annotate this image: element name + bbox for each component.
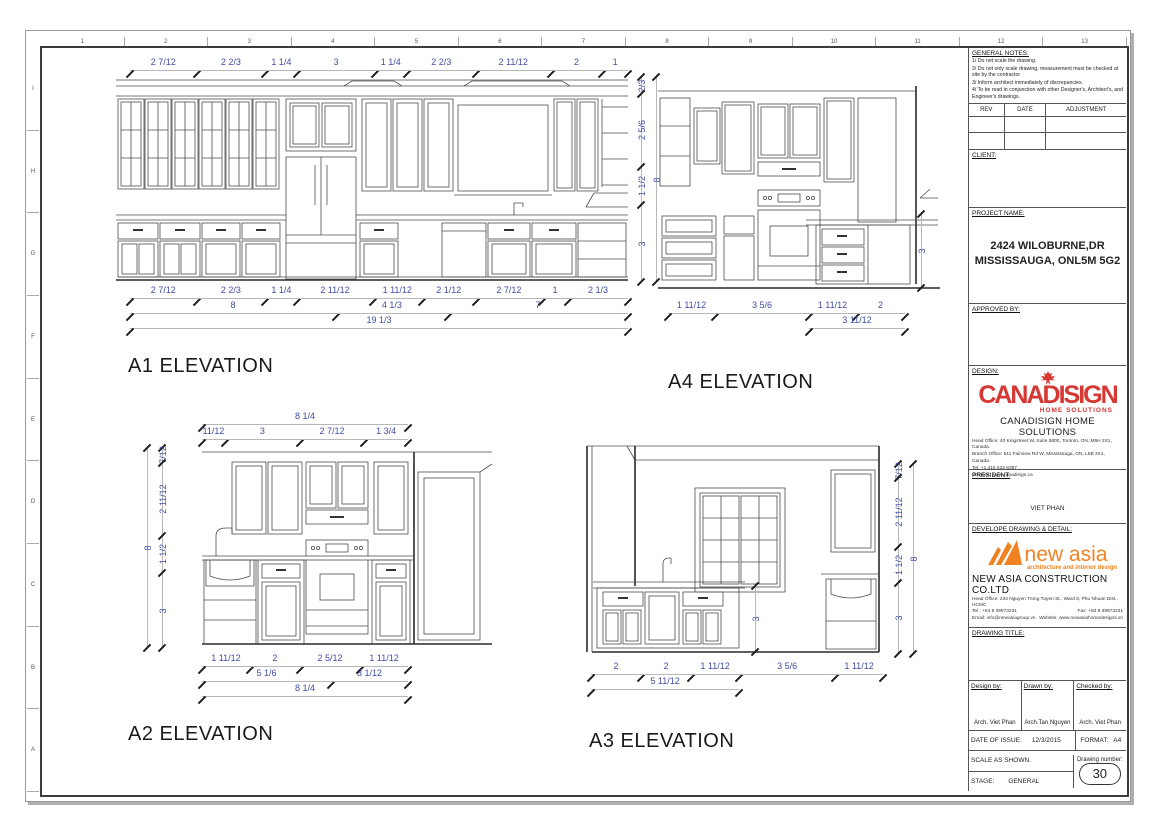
dim-label: 2 2/3 — [407, 58, 476, 71]
drawing-number-badge: 30 — [1079, 763, 1121, 785]
a2-drawing-graphic — [202, 448, 492, 648]
a1-bottom-dimensions-2: 84 1/37 — [130, 301, 628, 314]
a4-bottom-dimensions-2: 3 11/12 — [668, 316, 905, 329]
dim-label: 5 1/6 — [202, 669, 331, 682]
drawing-title-label: DRAWING TITLE: — [972, 630, 1123, 637]
dim-label: 2 — [250, 654, 300, 667]
general-note: 2/ Do not only scale drawing, measuremen… — [972, 66, 1123, 79]
revision-table: REV DATE ADJUSTMENT — [969, 104, 1126, 150]
ruler-letter: H — [27, 131, 39, 214]
dim-label: 1 11/12 — [360, 654, 408, 667]
dim-label: 1 — [542, 286, 568, 299]
dim-spacer — [668, 316, 809, 329]
canadisign-logo: CANADISIGN HOME SOLUTIONS — [972, 383, 1123, 414]
dim-label: 1 1/2 — [891, 547, 906, 583]
drawn-by-column: Drawn by: Arch.Tan Nguyen — [1022, 681, 1075, 730]
a3-bottom-dimensions-2: 5 11/12 — [591, 677, 883, 690]
new-asia-logo-subtext: architecture and interior design — [972, 565, 1117, 571]
ruler-letter: E — [27, 379, 39, 462]
a1-right-dimensions: 2/32 5/61 1/23 — [634, 77, 649, 282]
ruler-letter: G — [27, 213, 39, 296]
project-name-line2: MISSISSAUGA, ONL5M 5G2 — [972, 254, 1123, 269]
stage-label: STAGE: — [971, 778, 994, 785]
drawing-number-value: 30 — [1093, 766, 1107, 781]
dim-label: 1 1/2 — [634, 167, 649, 205]
dim-label: 8 1/4 — [202, 412, 408, 425]
dim-label: 2 7/12 — [130, 286, 197, 299]
issue-section: DATE OF ISSUE: 12/3/2015 FORMAT: A4 — [969, 731, 1126, 751]
dim-label: 1 — [602, 58, 628, 71]
approved-section: APPROVED BY: — [969, 304, 1126, 366]
dim-label: 3 5/6 — [739, 662, 835, 675]
dim-label: 2 7/12 — [300, 427, 365, 440]
dim-label: 11/12 — [202, 427, 225, 440]
ruler-number: 6 — [459, 37, 543, 46]
rev-header: REV — [969, 104, 1005, 117]
drawn-by-name: Arch.Tan Nguyen — [1024, 720, 1072, 726]
checked-by-name: Arch. Viet Phan — [1076, 720, 1124, 726]
dim-label: 3 — [225, 427, 300, 440]
dim-label: 8 — [140, 448, 155, 648]
rev-cell — [969, 117, 1005, 133]
maple-leaf-icon — [1041, 371, 1055, 385]
a3-bottom-dimensions-1: 221 11/123 5/61 11/12 — [591, 662, 883, 675]
date-of-issue-label: DATE OF ISSUE: — [971, 737, 1022, 744]
dim-label: 5 11/12 — [591, 677, 739, 690]
new-asia-address: Head Office: 234 Nguyen Trong Tuyen St.,… — [972, 597, 1123, 609]
general-note: 4/ To be read in conjunction with other … — [972, 87, 1123, 100]
adjustment-header: ADJUSTMENT — [1046, 104, 1126, 117]
a2-elevation-label: A2 ELEVATION — [128, 723, 520, 746]
dim-label: 3 — [297, 58, 374, 71]
scale-label: SCALE AS SHOWN. — [971, 757, 1031, 764]
a2-top-total-dimension: 8 1/4 — [202, 412, 408, 425]
a3-elevation: 3 7/122 11/121 1/23 8 221 11/123 5/61 11… — [583, 436, 943, 753]
general-note: 3/ Inform architect immediately of discr… — [972, 80, 1123, 87]
rev-cell — [969, 133, 1005, 149]
dim-label: 2 — [641, 662, 691, 675]
adjustment-cell — [1046, 117, 1126, 133]
ruler-letter: B — [27, 627, 39, 710]
ruler-number: 1 — [41, 37, 125, 46]
adjustment-cell — [1046, 133, 1126, 149]
dim-label: 3 — [748, 586, 763, 652]
project-section: PROJECT NAME: 2424 WILOBURNE,DR MISSISSA… — [969, 208, 1126, 304]
a2-elevation: 8 1/4 11/1232 7/121 3/4 8 7/122 11/121 1… — [140, 410, 520, 746]
left-ruler: IHGFEDCBA — [27, 48, 39, 792]
date-of-issue-value: 12/3/2015 — [1032, 737, 1061, 744]
drawing-sheet: 12345678910111213 IHGFEDCBA 2 7/122 2/31… — [0, 0, 1170, 826]
credits-section: Design by: Arch. Viet Phan Drawn by: Arc… — [969, 681, 1126, 731]
dim-label: 2 11/12 — [891, 478, 906, 547]
dim-label: 3 1/12 — [331, 669, 408, 682]
dim-label: 7/12 — [155, 448, 170, 463]
dim-label: 2 11/12 — [297, 286, 372, 299]
developer-section: DEVELOPE DRAWING & DETAIL: new asia arch… — [969, 524, 1126, 628]
ruler-number: 3 — [208, 37, 292, 46]
scale-stage-section: SCALE AS SHOWN. STAGE: GENERAL Drawing n… — [969, 751, 1126, 791]
a1-drawing-graphic — [116, 77, 628, 282]
title-block: GENERAL NOTES: 1/ Do not scale the drawi… — [968, 48, 1126, 791]
ruler-letter: D — [27, 461, 39, 544]
a3-elevation-label: A3 ELEVATION — [589, 730, 943, 753]
ruler-letter: F — [27, 296, 39, 379]
new-asia-logo: new asia — [972, 539, 1123, 565]
dim-label: 1 1/4 — [375, 58, 407, 71]
dim-label: 2 — [551, 58, 603, 71]
drawing-number-label: Drawing number: — [1077, 757, 1123, 763]
a2-top-dimensions: 11/1232 7/121 3/4 — [202, 427, 408, 440]
a4-bottom-dimensions-1: 1 11/123 5/61 11/122 — [668, 301, 905, 314]
canadisign-logo-text: CANADISIGN — [972, 383, 1123, 407]
a3-island-height-dimension: 3 — [748, 586, 763, 652]
date-cell — [1005, 133, 1047, 149]
new-asia-company-name: NEW ASIA CONSTRUCTION CO.LTD — [972, 574, 1123, 596]
dim-label: 8 1/4 — [202, 684, 408, 697]
dim-label: 3 — [634, 205, 649, 282]
drawn-by-label: Drawn by: — [1024, 683, 1072, 690]
date-cell — [1005, 117, 1047, 133]
dim-label: 2 1/12 — [422, 286, 476, 299]
ruler-number: 8 — [626, 37, 710, 46]
a3-drawing-graphic — [583, 436, 883, 658]
dim-label: 1 3/4 — [364, 427, 408, 440]
a2-left-total-dimension: 8 — [140, 448, 155, 648]
ruler-letter: I — [27, 48, 39, 131]
drawing-title-section: DRAWING TITLE: — [969, 628, 1126, 681]
dim-spacer — [739, 677, 883, 690]
format-label: FORMAT: — [1080, 737, 1108, 744]
design-by-label: Design by: — [971, 683, 1019, 690]
a1-top-dimensions: 2 7/122 2/31 1/431 1/42 2/32 11/1221 — [130, 58, 628, 71]
dim-label: 2 5/6 — [634, 94, 649, 167]
a2-bottom-dimensions-1: 1 11/1222 5/121 11/12 — [202, 654, 408, 667]
dim-label: 3 — [891, 583, 906, 654]
date-header: DATE — [1005, 104, 1047, 117]
a4-elevation-label: A4 ELEVATION — [668, 371, 958, 394]
new-asia-website: Website: www.newasiahomedesigns.vn — [1039, 616, 1123, 622]
a4-counter-height-dimension: 3 — [914, 214, 929, 288]
new-asia-logo-text: new asia — [1025, 545, 1108, 565]
dim-label: 3 11/12 — [809, 316, 905, 329]
design-by-column: Design by: Arch. Viet Phan — [969, 681, 1022, 730]
a4-drawing-graphic — [658, 86, 940, 291]
dim-label: 19 1/3 — [130, 316, 628, 329]
a3-right-dimensions: 7/122 11/121 1/23 — [891, 464, 906, 654]
design-by-name: Arch. Viet Phan — [971, 720, 1019, 726]
dim-label: 1 11/12 — [809, 301, 856, 314]
dim-label: 2 7/12 — [130, 58, 197, 71]
president-label: PRESIDENT: — [972, 472, 1123, 479]
a2-bottom-total-dimension: 8 1/4 — [202, 684, 408, 697]
dim-label: 1 1/4 — [265, 286, 297, 299]
dim-label: 2 7/12 — [476, 286, 543, 299]
dim-label: 1 11/12 — [202, 654, 250, 667]
dim-label: 1 11/12 — [691, 662, 739, 675]
dim-label: 2/3 — [634, 77, 649, 94]
developer-label: DEVELOPE DRAWING & DETAIL: — [972, 526, 1123, 533]
design-section: DESIGN: CANADISIGN HOME SOLUTIONS CANADI… — [969, 366, 1126, 470]
client-label: CLIENT: — [972, 152, 1123, 159]
general-notes-heading: GENERAL NOTES: — [972, 50, 1123, 57]
dim-label: 7 — [448, 301, 628, 314]
a2-left-dimensions: 7/122 11/121 1/23 — [155, 448, 170, 648]
a1-elevation-label: A1 ELEVATION — [128, 355, 676, 378]
ruler-letter: A — [27, 709, 39, 792]
dim-label: 2 11/12 — [155, 463, 170, 536]
dim-label: 2 11/12 — [476, 58, 551, 71]
a1-bottom-dimensions-1: 2 7/122 2/31 1/42 11/121 11/122 1/122 7/… — [130, 286, 628, 299]
checked-by-label: Checked by: — [1076, 683, 1124, 690]
ruler-number: 11 — [876, 37, 960, 46]
ruler-number: 9 — [709, 37, 793, 46]
format-value: A4 — [1113, 737, 1121, 744]
a1-bottom-total-dimension: 19 1/3 — [130, 316, 628, 329]
president-name: VIET PHAN — [972, 505, 1123, 512]
stage-value: GENERAL — [1008, 778, 1039, 785]
dim-label: 3 — [155, 573, 170, 648]
general-note: 1/ Do not scale the drawing. — [972, 58, 1123, 65]
canadisign-address-2: Branch Office: 511 Fairview Rd W, Missis… — [972, 452, 1123, 464]
ruler-number: 4 — [292, 37, 376, 46]
ruler-number: 12 — [960, 37, 1044, 46]
dim-label: 1 1/4 — [265, 58, 297, 71]
dim-label: 2 2/3 — [197, 58, 266, 71]
ruler-number: 5 — [375, 37, 459, 46]
dim-label: 1 11/12 — [668, 301, 715, 314]
dim-label: 1 11/12 — [835, 662, 883, 675]
dim-label: 2 — [856, 301, 905, 314]
general-notes-section: GENERAL NOTES: 1/ Do not scale the drawi… — [969, 48, 1126, 104]
dim-label: 2 5/12 — [300, 654, 360, 667]
dim-label: 1 11/12 — [373, 286, 422, 299]
canadisign-address-1: Head Office: 40 Kingstreet W, Suite 5800… — [972, 439, 1123, 451]
new-asia-email: Email: info@newasiagroup.vn — [972, 616, 1036, 622]
ruler-number: 13 — [1043, 37, 1127, 46]
general-notes-list: 1/ Do not scale the drawing.2/ Do not on… — [972, 58, 1123, 100]
a2-bottom-dimensions-2: 5 1/63 1/12 — [202, 669, 408, 682]
ruler-number: 2 — [125, 37, 209, 46]
ruler-number: 7 — [542, 37, 626, 46]
dim-label: 2 — [591, 662, 641, 675]
approved-by-label: APPROVED BY: — [972, 306, 1123, 313]
dim-label: 2 1/3 — [568, 286, 628, 299]
canadisign-company-name: CANADISIGN HOME SOLUTIONS — [972, 416, 1123, 438]
project-name-line1: 2424 WILOBURNE,DR — [972, 239, 1123, 254]
ruler-letter: C — [27, 544, 39, 627]
a3-right-total-dimension: 8 — [906, 464, 921, 654]
top-ruler: 12345678910111213 — [41, 37, 1127, 46]
dim-label: 3 5/6 — [715, 301, 809, 314]
client-section: CLIENT: — [969, 150, 1126, 208]
a1-elevation: 2 7/122 2/31 1/431 1/42 2/32 11/1221 — [116, 56, 676, 378]
project-name-label: PROJECT NAME: — [972, 210, 1123, 217]
checked-by-column: Checked by: Arch. Viet Phan — [1074, 681, 1126, 730]
dim-label: 3 — [914, 214, 929, 288]
new-asia-logo-icon — [988, 539, 1022, 565]
dim-label: 1 1/2 — [155, 536, 170, 574]
dim-label: 8 — [130, 301, 336, 314]
dim-label: 7/12 — [891, 464, 906, 478]
a4-elevation: 3 1 11/123 5/61 11/122 3 11/12 A4 ELEVAT… — [658, 86, 958, 394]
dim-label: 4 1/3 — [336, 301, 448, 314]
dim-label: 8 — [906, 464, 921, 654]
ruler-number: 10 — [793, 37, 877, 46]
dim-label: 2 2/3 — [197, 286, 266, 299]
president-section: PRESIDENT: VIET PHAN — [969, 470, 1126, 524]
